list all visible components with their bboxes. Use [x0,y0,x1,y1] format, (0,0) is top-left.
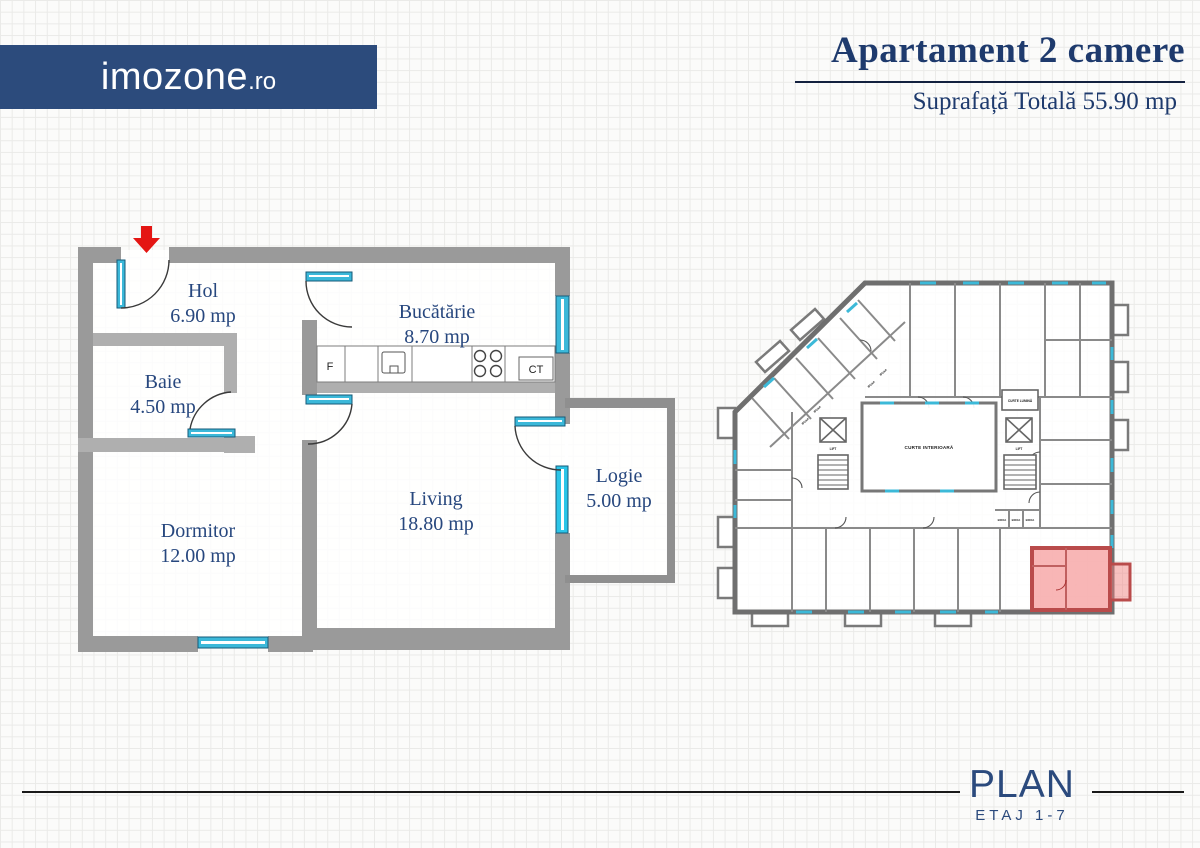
boxa-label: BOXA [998,518,1008,522]
highlighted-unit [1032,548,1130,610]
room-area-living: 18.80 mp [398,513,474,535]
room-label-baie: Baie [145,371,182,393]
total-area-subtitle: Suprafață Totală 55.90 mp [700,88,1177,116]
logo-text: imozone [101,56,248,99]
footer-rule-right [1092,791,1184,793]
light-court-label: CURTE LUMINĂ [1008,398,1033,403]
entrance-arrow-icon [133,226,160,253]
room-label-logie: Logie [596,465,643,487]
room-area-bucatarie: 8.70 mp [404,326,470,348]
footer-rule-left [22,791,960,793]
plan-label: PLAN [958,765,1086,805]
apartment-floorplan: F CT [60,210,690,665]
room-area-dormitor: 12.00 mp [160,545,236,567]
fridge-label: F [327,361,334,373]
floor-label: ETAJ 1-7 [958,807,1086,824]
logo-banner: imozone.ro [0,45,377,109]
lift-label-right: LIFT [1016,447,1023,451]
lift-label-left: LIFT [830,447,837,451]
flyer-canvas: imozone.ro Apartament 2 camere Suprafață… [0,0,1200,848]
title-block: Apartament 2 camere [700,30,1185,72]
building-key-plan: CURTE INTERIOARĂ LIFT LIFT CURTE LUMINĂ … [690,262,1150,634]
logo-suffix: .ro [248,68,276,96]
title-underline [795,81,1185,83]
boiler-label: CT [529,364,544,376]
boxa-label: BOXA [1026,518,1036,522]
plan-block: PLAN ETAJ 1-7 [958,765,1086,824]
room-label-bucatarie: Bucătărie [399,301,476,323]
courtyard-label: CURTE INTERIOARĂ [905,444,954,450]
room-label-living: Living [409,488,462,510]
boxa-label: BOXA [1012,518,1022,522]
room-area-baie: 4.50 mp [130,396,196,418]
sink [382,352,405,373]
room-label-hol: Hol [188,280,218,302]
room-area-logie: 5.00 mp [586,490,652,512]
page-title: Apartament 2 camere [700,30,1185,72]
room-label-dormitor: Dormitor [161,520,236,542]
room-area-hol: 6.90 mp [170,305,236,327]
